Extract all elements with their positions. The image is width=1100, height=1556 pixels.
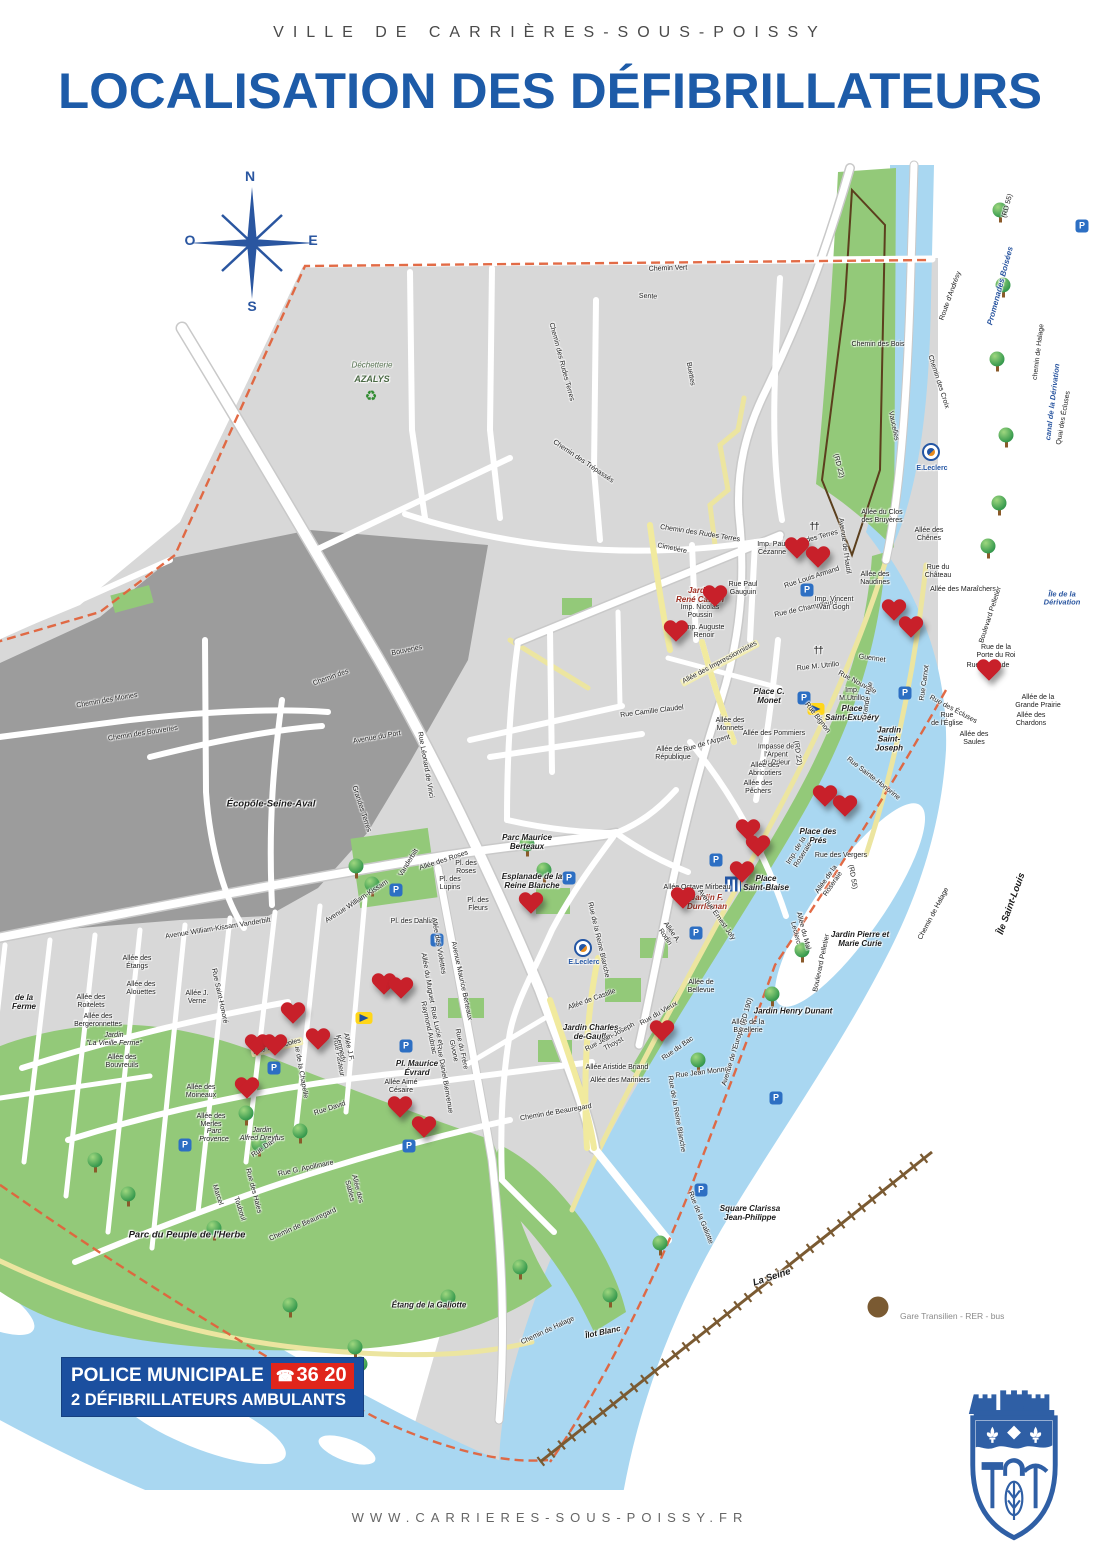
compass-south-label: S xyxy=(247,298,256,314)
map-label: Place C. Monet xyxy=(753,688,784,706)
tree-icon xyxy=(992,496,1007,511)
map-label: Promenades Boisées xyxy=(986,246,1016,326)
map-label: Imp. Paul Cézanne xyxy=(757,541,787,557)
map-label: Étang de la Galiotte xyxy=(392,1302,467,1311)
map-label: (RD 55) xyxy=(1001,193,1015,219)
map-label: Allée des Bouvreuils xyxy=(106,1054,139,1070)
defibrillator-heart-icon xyxy=(702,586,728,609)
map-label: Allée des Moineaux xyxy=(186,1084,216,1100)
defibrillator-heart-icon xyxy=(898,617,924,640)
map-label: Route d'Andrésy xyxy=(939,270,964,321)
parking-icon: P xyxy=(710,854,723,867)
map-label: Île Saint-Louis xyxy=(996,872,1028,937)
map-label: Allée de Bellevue xyxy=(688,979,715,995)
police-banner-subtitle: 2 DÉFIBRILLATEURS AMBULANTS xyxy=(71,1391,354,1410)
map-label: Rue de la Reine Blanche xyxy=(585,901,610,978)
defibrillator-heart-icon xyxy=(305,1029,331,1052)
map-label: Rue des Vergers xyxy=(815,852,867,860)
map-label: Rue de la Reine Blanche xyxy=(665,1075,686,1153)
map-label: Chemin des Bois xyxy=(852,341,905,349)
phone-badge: ☎ 36 20 xyxy=(271,1363,354,1389)
city-name: VILLE DE CARRIÈRES-SOUS-POISSY xyxy=(0,24,1100,42)
compass-west-label: O xyxy=(185,232,196,248)
map-label: Allée des Monnets xyxy=(716,717,745,733)
parking-icon: P xyxy=(563,872,576,885)
parking-icon: P xyxy=(390,884,403,897)
map-label: Rue Paul Gauguin xyxy=(729,581,758,597)
map-label: Allée de Castille xyxy=(567,988,617,1013)
map-label: Touboul xyxy=(231,1196,246,1222)
compass-north-label: N xyxy=(245,168,255,184)
defibrillator-heart-icon xyxy=(280,1003,306,1026)
map-label: Chemin des Trépassés xyxy=(551,439,615,486)
map-label: Avenue William-Kissam xyxy=(324,879,390,926)
tree-icon xyxy=(691,1053,706,1068)
parking-icon: P xyxy=(899,687,912,700)
defibrillator-heart-icon xyxy=(411,1117,437,1140)
map-label: Allée des Impressionnistes xyxy=(680,639,761,687)
map-label: Chemin des Rudes Terres xyxy=(547,322,575,402)
tree-icon xyxy=(349,859,364,874)
map-label: Rue des Haies xyxy=(243,1168,262,1214)
compass-east-label: E xyxy=(308,232,317,248)
map-label: Déchetterie xyxy=(352,362,393,371)
map-label: Allée des Abricotiers xyxy=(748,762,781,778)
tree-icon xyxy=(990,352,1005,367)
map-label: Vaucelles xyxy=(886,411,900,442)
map-label: Allée des Sables xyxy=(342,1174,365,1206)
map-label: Rue de la Porte du Roi xyxy=(977,644,1016,660)
map-label: Chemin de Halage xyxy=(917,887,951,942)
map-label: de la Ferme xyxy=(12,994,36,1012)
phone-icon: ☎ xyxy=(276,1367,295,1385)
map-label: Pl. Maurice Évrard xyxy=(396,1060,438,1078)
defibrillator-heart-icon xyxy=(832,796,858,819)
map-label: Chemin des Moines xyxy=(76,692,138,710)
map-label: Boulevard Pelletier xyxy=(812,933,832,992)
city-crest-icon xyxy=(960,1382,1068,1550)
map-label: Imp. de la Roseraie xyxy=(785,836,815,870)
map-label: Avenue William-Kissam Vanderbilt xyxy=(165,917,271,941)
map-label: Chemin des Bouveries xyxy=(108,725,179,744)
map-label: chemin de Halage xyxy=(1032,324,1047,381)
map-label: (RD 22) xyxy=(831,453,845,479)
phone-number: 36 20 xyxy=(297,1364,347,1387)
map-label: Allée des Chardons xyxy=(1016,712,1046,728)
map-label: Allée des Chênes xyxy=(915,527,944,543)
map-label: Allée J. Verne xyxy=(186,990,209,1006)
map-label: Allée du Mal Leclerc xyxy=(786,911,811,952)
map-label: Pl. des Fleurs xyxy=(467,897,488,913)
parking-icon: P xyxy=(695,1184,708,1197)
poster: VILLE DE CARRIÈRES-SOUS-POISSY LOCALISAT… xyxy=(0,0,1100,1556)
map-label: Rue G. Apollinaire xyxy=(278,1159,335,1178)
map-label: †† xyxy=(813,645,822,656)
map-label: AZALYS xyxy=(354,374,389,384)
map-label: Allée des Bergeronnettes xyxy=(74,1013,122,1029)
defibrillator-heart-icon xyxy=(262,1035,288,1058)
map-label: †† xyxy=(809,521,818,532)
map-label: Allée Aimé Césaire xyxy=(384,1079,417,1095)
map-label: Vanderbilt xyxy=(397,848,420,878)
tree-icon xyxy=(239,1106,254,1121)
map-label: Chemin des xyxy=(312,668,350,688)
parking-icon: P xyxy=(268,1062,281,1075)
tree-icon xyxy=(348,1340,363,1355)
map-label: Rue Saint-Honoré xyxy=(209,968,228,1024)
map-label: Rue de l'Église xyxy=(931,712,963,728)
supermarket-icon xyxy=(574,939,592,957)
map-label: Allée des Roitelets xyxy=(77,994,106,1010)
parking-icon: P xyxy=(770,1092,783,1105)
defibrillator-heart-icon xyxy=(518,893,544,916)
map-label: Écopôle-Seine-Aval xyxy=(227,800,316,811)
map-label: Sente xyxy=(639,293,658,302)
map-label: Parc Provence xyxy=(199,1128,229,1144)
parking-icon: P xyxy=(179,1139,192,1152)
website-url: WWW.CARRIERES-SOUS-POISSY.FR xyxy=(0,1510,1100,1525)
map-label: Marcel xyxy=(210,1184,224,1206)
post-office-icon xyxy=(356,1012,373,1024)
map-label: Allée de la Grande Prairie xyxy=(1015,694,1061,710)
map-label: Esplanade de la Reine Blanche xyxy=(502,873,562,891)
map-label: Chemin de Beauregard xyxy=(520,1103,593,1123)
tree-icon xyxy=(765,987,780,1002)
parking-icon: P xyxy=(801,584,814,597)
map-label: Grandes Terres xyxy=(350,785,372,833)
map-label: Chemin des Croix xyxy=(926,354,951,409)
defibrillator-heart-icon xyxy=(388,978,414,1001)
map-label: Allée des Alouettes xyxy=(126,981,155,997)
defibrillator-heart-icon xyxy=(745,836,771,859)
map-label: Boulevard Pelletier xyxy=(978,586,1004,644)
map-label: Allée des Pêchers xyxy=(744,780,773,796)
map-label: Buettes xyxy=(684,362,696,387)
map-label: Allée des Pommiers xyxy=(743,730,805,738)
defibrillator-heart-icon xyxy=(729,862,755,885)
map-label: Rue du Frère Givone xyxy=(445,1028,469,1072)
tree-icon xyxy=(603,1288,618,1303)
map-label: Allée des Mariniers xyxy=(590,1077,650,1085)
map-label: Avenue de l'Europe (RD 190) xyxy=(721,997,755,1086)
defibrillator-heart-icon xyxy=(387,1097,413,1120)
map-label: Allée des Étangs xyxy=(123,955,152,971)
train-station-icon xyxy=(868,1297,889,1318)
map-label: Rue du Château xyxy=(925,564,951,580)
defibrillator-heart-icon xyxy=(976,660,1002,683)
map-label: Bouveries xyxy=(391,644,423,658)
map-label: Rue de l'Arpent xyxy=(683,734,731,755)
map-label: Rue Léonard de Vinci xyxy=(415,731,434,799)
map-label: Allée Aristide Briand xyxy=(586,1064,649,1072)
map-label: (RD 55) xyxy=(846,864,858,890)
map-label: La Seine xyxy=(752,1267,792,1289)
map-label: Imp. Auguste Renoir xyxy=(684,624,725,640)
tree-icon xyxy=(293,1124,308,1139)
map-label: Quai des Écluses xyxy=(1055,390,1072,445)
map-overlay: Chemin VertSenteChemin des Rudes TerresB… xyxy=(0,150,1100,1490)
map-label: Jardin Alfred Dreyfus xyxy=(240,1127,284,1143)
map-label: Chemin de Halage xyxy=(520,1315,576,1347)
map-label: Square Clarissa Jean-Philippe xyxy=(720,1205,780,1223)
tree-icon xyxy=(999,428,1014,443)
defibrillator-heart-icon xyxy=(663,621,689,644)
map-label: Allée des Naudines xyxy=(860,571,890,587)
map-label: Parc du Peuple de l'Herbe xyxy=(129,1231,246,1242)
map-label: Avenue Maurice Berteaux xyxy=(449,941,473,1021)
map-label: Jardin Saint- Joseph xyxy=(875,727,903,754)
tree-icon xyxy=(88,1153,103,1168)
map-label: E.Leclerc xyxy=(916,465,947,473)
map-label: Allée du Muguet xyxy=(419,952,435,1003)
parking-icon: P xyxy=(690,927,703,940)
map-label: Place Saint-Exupéry xyxy=(825,705,879,723)
map-label: Rue de la Galiotte xyxy=(686,1191,714,1246)
tree-icon xyxy=(513,1260,528,1275)
tree-icon xyxy=(653,1236,668,1251)
tree-icon xyxy=(283,1298,298,1313)
parking-icon: P xyxy=(400,1040,413,1053)
police-banner: POLICE MUNICIPALE ☎ 36 20 2 DÉFIBRILLATE… xyxy=(62,1358,363,1416)
map-label: Jardin Pierre et Marie Curie xyxy=(831,931,889,949)
map-label: Guennet xyxy=(858,653,886,664)
tree-icon xyxy=(121,1187,136,1202)
map-label: Allée A. Rodin xyxy=(655,921,681,949)
defibrillator-heart-icon xyxy=(670,888,696,911)
page-title: LOCALISATION DES DÉFIBRILLATEURS xyxy=(0,62,1100,120)
parking-icon: P xyxy=(403,1140,416,1153)
defibrillator-heart-icon xyxy=(649,1021,675,1044)
map-label: Cimetière xyxy=(657,542,688,556)
map-label: Rue M. Utrillo xyxy=(797,661,840,673)
map-label: Pl. des Roses xyxy=(455,860,476,876)
town-map: Chemin VertSenteChemin des Rudes TerresB… xyxy=(0,150,1100,1490)
compass-rose-icon xyxy=(187,185,317,301)
police-banner-title: POLICE MUNICIPALE xyxy=(71,1365,264,1387)
map-label: Jardin Henry Dunant xyxy=(754,1008,833,1017)
map-label: Rue Camille Claudel xyxy=(620,704,684,720)
supermarket-icon xyxy=(922,443,940,461)
map-label: Île de la Dérivation xyxy=(1044,591,1081,608)
map-label: Jardin "La Vieille Ferme" xyxy=(86,1032,141,1048)
map-label: Allée des Maraîchers xyxy=(930,586,996,594)
map-label: Imp. M.Utrillo xyxy=(839,687,865,703)
parking-icon: P xyxy=(1076,220,1089,233)
map-label: Avenue du Port xyxy=(353,730,402,746)
map-label: E.Leclerc xyxy=(568,959,599,967)
defibrillator-heart-icon xyxy=(805,547,831,570)
map-label: Rue David xyxy=(313,1100,347,1118)
recycling-icon: ♻ xyxy=(365,388,378,405)
tree-icon xyxy=(981,539,996,554)
map-label: Parc Maurice Berteaux xyxy=(502,834,552,852)
map-label: Allée des Saules xyxy=(960,731,989,747)
map-label: Chemin des Rudes Terres xyxy=(659,524,740,544)
map-label: Allée des Merles xyxy=(197,1113,226,1129)
defibrillator-heart-icon xyxy=(234,1078,260,1101)
map-label: Rue Lucie et Raymond Aubrac xyxy=(419,999,445,1055)
map-label: Îlot Blanc xyxy=(584,1325,621,1341)
map-label: Allée de la Roseraie xyxy=(814,864,846,900)
map-label: Pl. des Lupins xyxy=(439,876,460,892)
map-label: Chemin Vert xyxy=(649,264,688,273)
map-label: Imp. Vincent Van Gogh xyxy=(815,596,854,612)
map-label: Chemin de Beauregard xyxy=(268,1207,337,1244)
map-label: Allée du Clos des Bruyères xyxy=(861,509,902,525)
map-label: Gare Transilien - RER - bus xyxy=(900,1312,1004,1322)
